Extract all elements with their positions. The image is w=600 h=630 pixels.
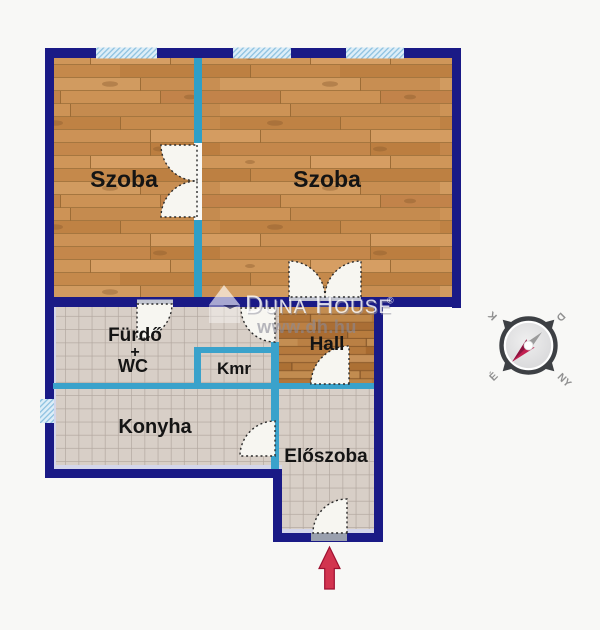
svg-text:Szoba: Szoba <box>293 166 361 192</box>
svg-text:Szoba: Szoba <box>90 166 158 192</box>
svg-text:Kmr: Kmr <box>217 359 251 378</box>
svg-text:®: ® <box>387 296 394 306</box>
svg-text:Konyha: Konyha <box>118 416 192 438</box>
svg-text:Fürdő: Fürdő <box>108 325 162 346</box>
svg-text:Hall: Hall <box>310 334 345 355</box>
svg-text:WC: WC <box>118 356 148 376</box>
svg-text:www.dh.hu: www.dh.hu <box>256 317 357 337</box>
svg-text:Előszoba: Előszoba <box>284 446 368 467</box>
